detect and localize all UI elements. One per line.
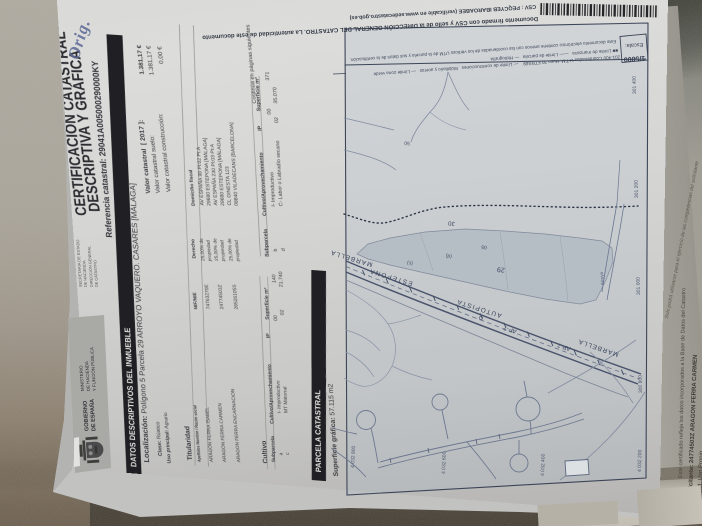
svg-text:(c): (c) <box>406 259 413 266</box>
svg-text:4 032 200: 4 032 200 <box>637 449 643 472</box>
svg-text:4 032 800: 4 032 800 <box>350 445 357 468</box>
svg-text:301 000: 301 000 <box>636 277 642 295</box>
svg-text:29: 29 <box>497 265 506 273</box>
svg-text:4 032 600: 4 032 600 <box>441 451 448 474</box>
svg-text:301 200: 301 200 <box>634 180 640 198</box>
svg-text:30: 30 <box>447 219 455 226</box>
svg-text:1/5000: 1/5000 <box>623 54 645 62</box>
svg-text:4 032 400: 4 032 400 <box>540 453 547 476</box>
svg-text:301 400: 301 400 <box>632 76 638 94</box>
svg-text:50: 50 <box>404 139 410 146</box>
svg-text:(d): (d) <box>445 252 452 259</box>
svg-text:300 800: 300 800 <box>638 375 644 393</box>
svg-text:05: 05 <box>481 243 487 250</box>
